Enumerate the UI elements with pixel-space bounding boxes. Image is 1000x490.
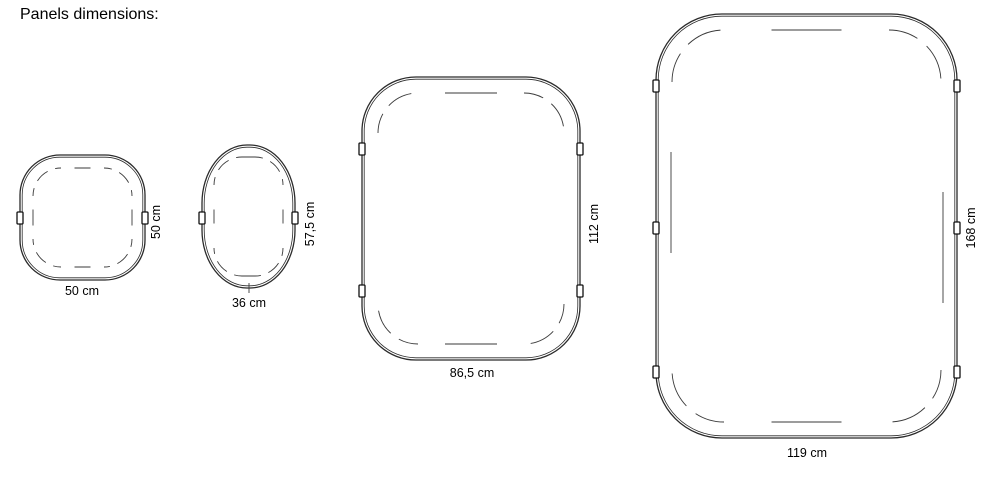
panel-medium-height-label: 112 cm bbox=[588, 204, 601, 244]
panel-medium-tab-left bbox=[359, 143, 365, 155]
panel-small-square-tab-left bbox=[17, 212, 23, 224]
panel-large-tab-right bbox=[954, 80, 960, 92]
panel-oval-tab-left bbox=[199, 212, 205, 224]
panel-medium-tab-left bbox=[359, 285, 365, 297]
panel-oval-width-label: 36 cm bbox=[232, 297, 266, 310]
panel-large-tab-right bbox=[954, 222, 960, 234]
panel-drawing-large bbox=[653, 14, 960, 438]
panel-large-tab-left bbox=[653, 80, 659, 92]
panel-small-square-width-label: 50 cm bbox=[65, 285, 99, 298]
panel-drawing-oval bbox=[199, 145, 298, 293]
panels-diagram: Panels dimensions: 50 cm 50 cm 36 cm 57,… bbox=[0, 0, 1000, 490]
panel-oval-tab-right bbox=[292, 212, 298, 224]
panel-drawing-small-square bbox=[17, 155, 148, 280]
panel-large-tab-right bbox=[954, 366, 960, 378]
panel-large-tab-left bbox=[653, 222, 659, 234]
panel-large-height-label: 168 cm bbox=[965, 208, 978, 249]
panel-medium-tab-right bbox=[577, 143, 583, 155]
panel-drawing-medium bbox=[359, 77, 583, 360]
panel-small-square-height-label: 50 cm bbox=[150, 205, 163, 239]
panel-oval-height-label: 57,5 cm bbox=[304, 202, 317, 246]
panel-medium-tab-right bbox=[577, 285, 583, 297]
panel-medium-width-label: 86,5 cm bbox=[450, 367, 494, 380]
panel-small-square-tab-right bbox=[142, 212, 148, 224]
panels-drawing bbox=[0, 0, 1000, 490]
panel-large-tab-left bbox=[653, 366, 659, 378]
panel-large-width-label: 119 cm bbox=[787, 447, 827, 460]
